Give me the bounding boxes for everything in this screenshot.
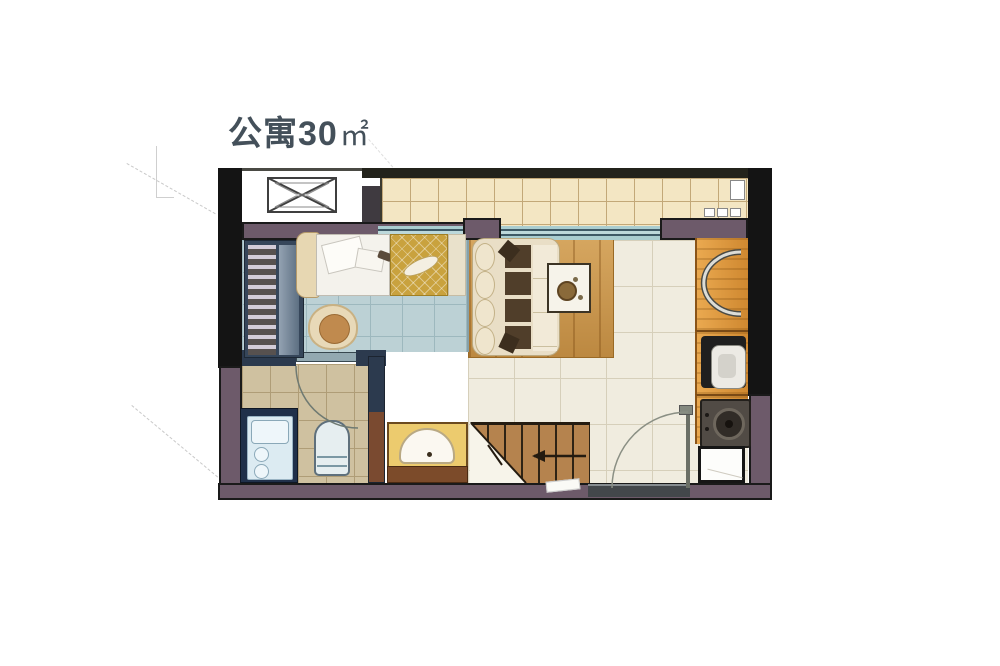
wardrobe <box>244 240 304 358</box>
leader-line-vertical <box>156 146 157 198</box>
fridge <box>698 446 745 483</box>
bedroom-armchair <box>308 304 358 350</box>
bed-gold-runner <box>390 234 448 296</box>
leader-line-foot <box>156 197 174 198</box>
window-wall-pier-left <box>463 218 501 240</box>
dashed-leader-top-left <box>127 163 216 214</box>
washing-machine <box>247 416 293 480</box>
toilet-seat-lines <box>317 456 347 467</box>
plan-title-text: 公寓30 <box>228 115 338 153</box>
entry-threshold <box>588 484 690 497</box>
stove-burner-center <box>725 420 733 428</box>
coffee-table-item-1 <box>578 295 583 300</box>
stove-knob-2 <box>705 427 709 431</box>
kitchen-sink-section <box>695 330 748 394</box>
wall-right-upper <box>748 168 772 396</box>
bedroom-living-divider <box>467 240 469 352</box>
washing-machine-knob-1 <box>254 447 269 462</box>
wardrobe-clothes-rack <box>248 245 276 355</box>
sofa-back-cushion-2 <box>475 271 495 299</box>
kitchen-stove-section <box>695 394 748 444</box>
toilet <box>314 420 350 476</box>
ac-unit-platform <box>242 168 362 224</box>
floor-plan <box>218 168 772 500</box>
entry-door-hardware <box>679 405 693 415</box>
sofa-back-cushion-4 <box>475 327 495 355</box>
sofa-back-cushion-1 <box>475 243 495 271</box>
wall-left-upper <box>218 168 242 368</box>
bathroom-glass-partition <box>296 352 358 362</box>
sofa-back-cushion-3 <box>475 299 495 327</box>
washing-machine-knob-2 <box>254 464 269 479</box>
floorplan-image: 公寓30㎡ <box>0 0 1000 666</box>
coffee-table-plate <box>557 281 577 301</box>
bed-ornament <box>401 252 441 281</box>
fridge-crease <box>707 469 742 479</box>
wall-top <box>360 168 772 178</box>
balcony-corner-unit <box>730 180 745 200</box>
sink-basin <box>718 354 736 378</box>
bathroom-divider-wall <box>368 356 385 483</box>
washing-machine-lid <box>251 420 289 444</box>
stove-burner <box>713 408 745 440</box>
plan-title: 公寓30㎡ <box>228 106 370 155</box>
kitchen-counter <box>695 238 748 330</box>
basin-cabinet <box>387 466 468 483</box>
balcony-fixture-2 <box>717 208 728 217</box>
stove <box>700 399 751 448</box>
coffee-table-item-2 <box>573 277 578 282</box>
dashed-leader-bottom-left <box>131 405 222 481</box>
stove-knob-1 <box>705 413 709 417</box>
wall-corner-block <box>362 186 380 224</box>
wall-left-lower <box>219 366 242 498</box>
basin-drain <box>427 452 432 457</box>
coffee-table <box>547 263 591 313</box>
armchair-cushion <box>319 314 350 344</box>
kitchen-sink <box>711 345 746 389</box>
window-wall-pier-right <box>660 218 748 240</box>
sink-surround <box>701 336 746 388</box>
plan-title-unit: ㎡ <box>340 120 370 152</box>
balcony-fixture-1 <box>704 208 715 217</box>
entry-door-leaf <box>686 410 690 488</box>
balcony-fixture-3 <box>730 208 741 217</box>
washing-machine-niche <box>240 408 298 483</box>
bed-foot-board <box>448 234 466 296</box>
